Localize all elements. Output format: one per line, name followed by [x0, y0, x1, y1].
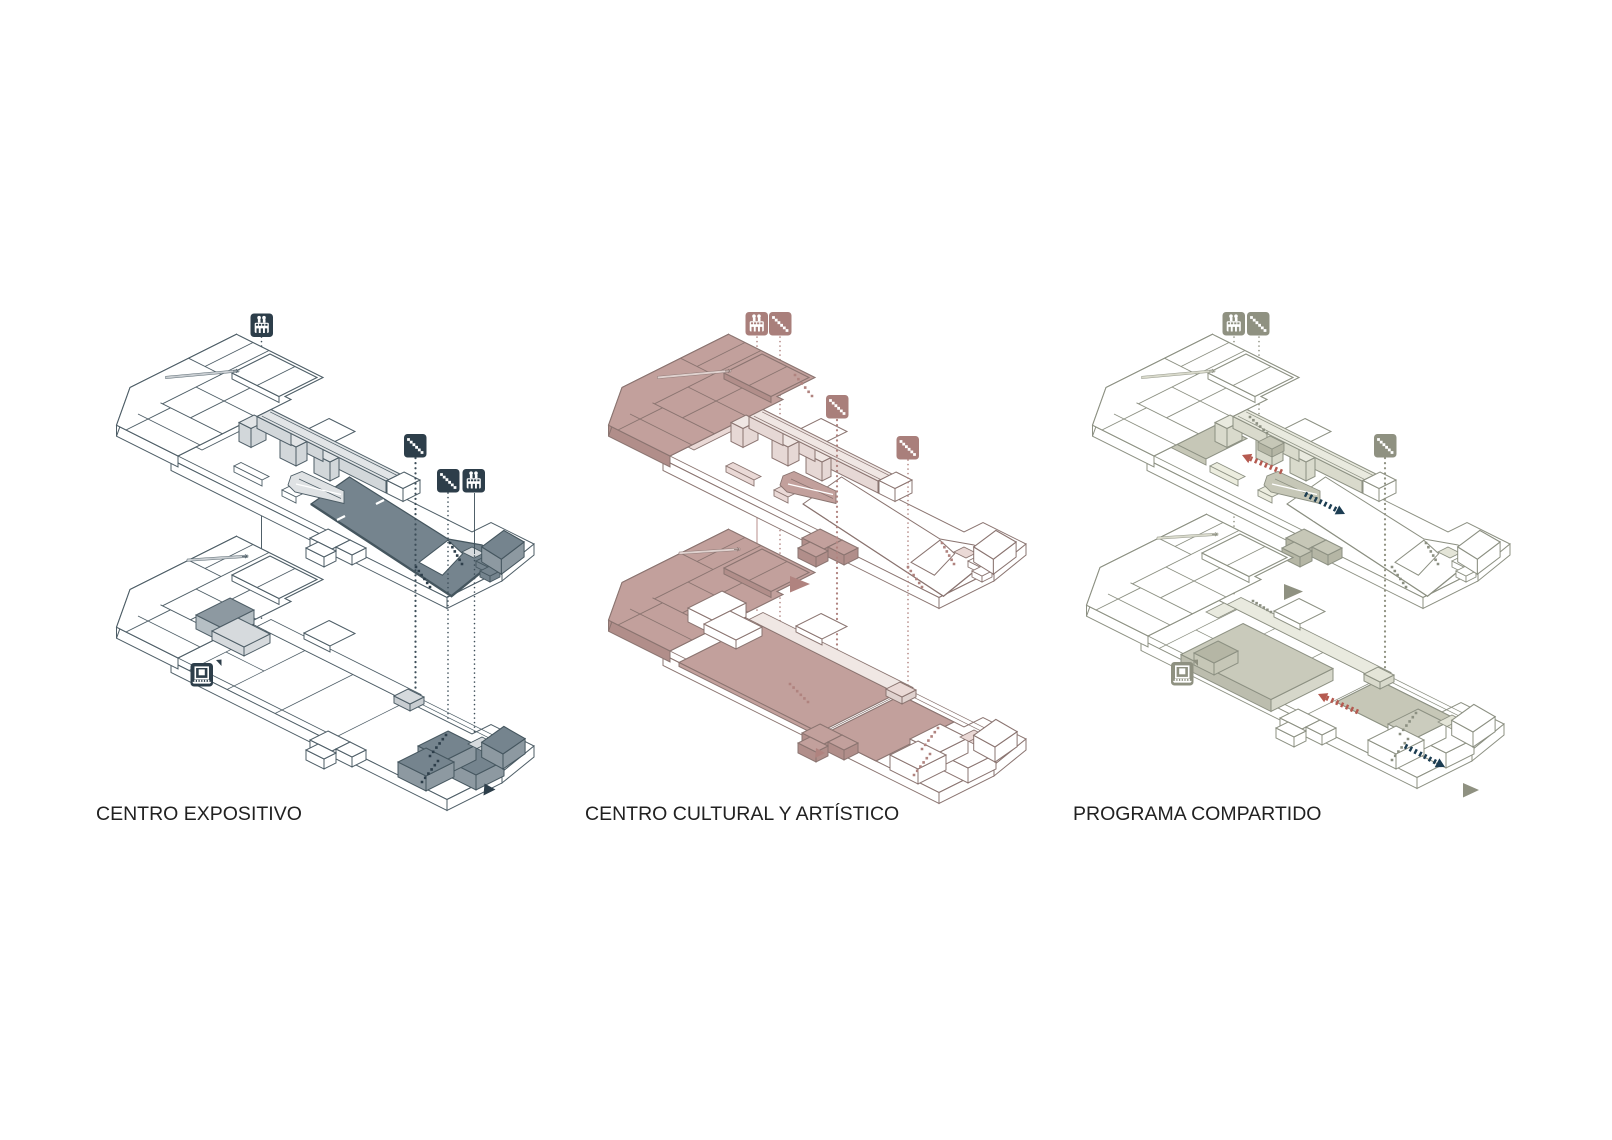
svg-text:CENTRO CULTURAL Y ARTÍSTICO: CENTRO CULTURAL Y ARTÍSTICO — [585, 802, 899, 825]
svg-text:CENTRO EXPOSITIVO: CENTRO EXPOSITIVO — [96, 803, 302, 825]
svg-text:PROGRAMA COMPARTIDO: PROGRAMA COMPARTIDO — [1073, 803, 1321, 825]
